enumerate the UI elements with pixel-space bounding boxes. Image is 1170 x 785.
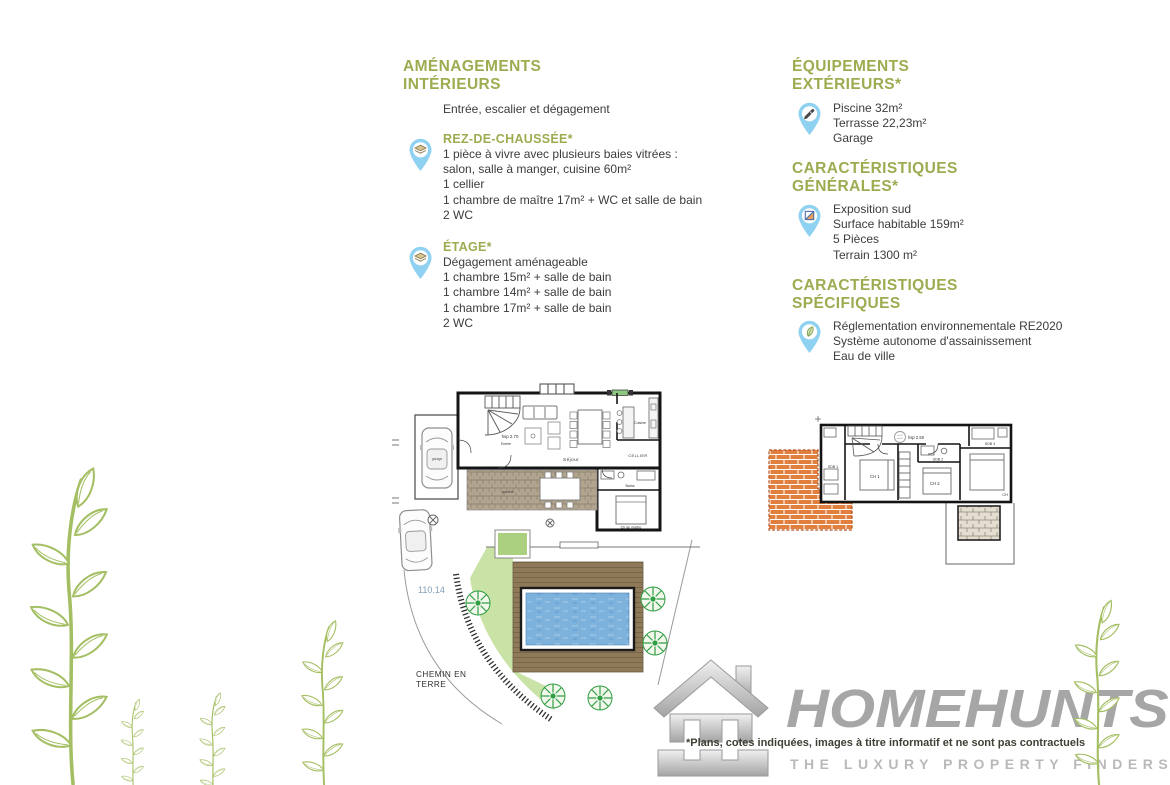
specific-line: Eau de ville (833, 349, 1062, 364)
ground-floor-plan: 110.14 CHEMIN EN TERRE garage (390, 380, 700, 725)
general-lines: Exposition sud Surface habitable 159m² 5… (833, 202, 964, 263)
interior-intro: Entrée, escalier et dégagement (443, 102, 610, 117)
specific-line: Réglementation environnementale RE2020 (833, 319, 1062, 334)
plant-sprig-medium (300, 620, 345, 785)
chemin-label-line2: TERRE (416, 680, 446, 689)
sejour-label: Séjour (563, 457, 579, 462)
house-ground-floor: garage (392, 384, 660, 530)
ground-floor-line: 2 WC (443, 208, 702, 223)
ch1-label: CH 1 (870, 474, 880, 479)
entree-label: Entrée (501, 442, 511, 446)
pouf (548, 422, 560, 434)
upper-floor-plan: SDB 1 CH 1 SDB 2 CH 2 SDB 3 CH hsp 2.50 (766, 412, 1016, 567)
cuisine-label: Cuisine (634, 421, 646, 425)
window-marker (612, 390, 628, 396)
height-stamp (895, 432, 906, 443)
equipment-pin-icon (797, 102, 822, 136)
dining-table (570, 410, 610, 448)
brand-name: HOMEHUNTS (786, 678, 1169, 740)
upper-floor-line: 1 chambre 17m² + salle de bain (443, 301, 611, 316)
site-dimension-label: 110.14 (418, 585, 445, 595)
general-pin-icon (797, 204, 822, 238)
equipment-title: ÉQUIPEMENTS EXTÉRIEURS* (792, 58, 909, 93)
general-title-line2: GÉNÉRALES* (792, 178, 958, 196)
equipment-lines: Piscine 32m² Terrasse 22,23m² Garage (833, 101, 926, 147)
general-title: CARACTÉRISTIQUES GÉNÉRALES* (792, 160, 958, 195)
brochure-page: { "colors": { "heading_green": "#9cac50"… (0, 0, 1170, 785)
upper-floor-line: 2 WC (443, 316, 611, 331)
upper-floor-line: 1 chambre 15m² + salle de bain (443, 270, 611, 285)
sdb1-label: SDB 1 (828, 465, 838, 469)
tree (466, 591, 490, 615)
tree (588, 686, 612, 710)
equipment-line: Garage (833, 131, 926, 146)
interior-title-line1: AMÉNAGEMENTS (403, 58, 541, 76)
specific-title: CARACTÉRISTIQUES SPÉCIFIQUES (792, 277, 958, 312)
hsp-upper-label: hsp 2.50 (908, 435, 925, 440)
ch3-label: CH (1002, 492, 1008, 497)
master-label: Ch de maître (621, 526, 642, 530)
sdb3-label: SDB 3 (985, 442, 995, 446)
sdb2-label: SDB 2 (933, 458, 943, 462)
specific-line: Système autonome d'assainissement (833, 334, 1062, 349)
ground-floor-heading: REZ-DE-CHAUSSÉE* (443, 132, 573, 146)
gate (560, 542, 598, 548)
plant-sprig-tall-left (28, 466, 111, 784)
pouf (548, 437, 560, 449)
general-line: Terrain 1300 m² (833, 248, 964, 263)
cellier-label: CELLIER (628, 453, 647, 458)
pool-water (526, 593, 629, 645)
specific-title-line2: SPÉCIFIQUES (792, 295, 958, 313)
ch2-label: CH 2 (930, 481, 940, 486)
tick (815, 416, 821, 422)
sofa (523, 406, 557, 419)
general-line: Surface habitable 159m² (833, 217, 964, 232)
general-line: 5 Pièces (833, 232, 964, 247)
equipment-title-line2: EXTÉRIEURS* (792, 76, 909, 94)
coffee-table (525, 428, 541, 444)
brand-tagline: THE LUXURY PROPERTY FINDERS (790, 756, 1170, 772)
equipment-line: Piscine 32m² (833, 101, 926, 116)
equipment-line: Terrasse 22,23m² (833, 116, 926, 131)
upper-floor-heading: ÉTAGE* (443, 240, 492, 254)
ground-floor-line: 1 chambre de maître 17m² + WC et salle d… (443, 193, 702, 208)
bains-label: Bains (626, 484, 635, 488)
disclaimer-text: *Plans, cotes indiquées, images à titre … (686, 737, 1085, 749)
upper-floor-line: Dégagement aménageable (443, 255, 611, 270)
ground-floor-pin-icon (408, 138, 433, 172)
survey-marker (546, 519, 554, 527)
dimension-ticks (392, 440, 399, 503)
tree (643, 631, 667, 655)
ground-floor-line: 1 cellier (443, 177, 702, 192)
ch3-bed (970, 454, 1004, 490)
specific-lines: Réglementation environnementale RE2020 S… (833, 319, 1062, 365)
tree (541, 684, 565, 708)
equipment-title-line1: ÉQUIPEMENTS (792, 58, 909, 76)
general-title-line1: CARACTÉRISTIQUES (792, 160, 958, 178)
plant-sprig-small-2 (199, 692, 227, 785)
survey-marker (428, 515, 438, 525)
upper-floor-lines: Dégagement aménageable 1 chambre 15m² + … (443, 255, 611, 331)
upper-floor-line: 1 chambre 14m² + salle de bain (443, 285, 611, 300)
ground-floor-line: 1 pièce à vivre avec plusieurs baies vit… (443, 147, 702, 162)
terrace-upper (946, 502, 1014, 564)
closet (899, 452, 910, 498)
ground-floor-lines: 1 pièce à vivre avec plusieurs baies vit… (443, 147, 702, 223)
interior-title-line2: INTÉRIEURS (403, 76, 541, 94)
tree (641, 587, 665, 611)
interior-title: AMÉNAGEMENTS INTÉRIEURS (403, 58, 541, 93)
upper-floor-pin-icon (408, 246, 433, 280)
chemin-label-line1: CHEMIN EN (416, 670, 466, 679)
specific-title-line1: CARACTÉRISTIQUES (792, 277, 958, 295)
chimney (540, 384, 574, 394)
general-line: Exposition sud (833, 202, 964, 217)
site-plan: 110.14 CHEMIN EN TERRE (397, 509, 700, 724)
ground-floor-line: salon, salle à manger, cuisine 60m² (443, 162, 702, 177)
porche-label: porche (502, 490, 514, 494)
plant-sprig-small-1 (120, 699, 144, 785)
specific-pin-icon (797, 320, 822, 354)
brick-terrace (958, 506, 1000, 540)
hsp-label: hsp 2.70 (502, 434, 519, 439)
house-base-shape (658, 750, 768, 776)
garage: garage (415, 415, 458, 499)
garage-label: garage (432, 457, 443, 461)
